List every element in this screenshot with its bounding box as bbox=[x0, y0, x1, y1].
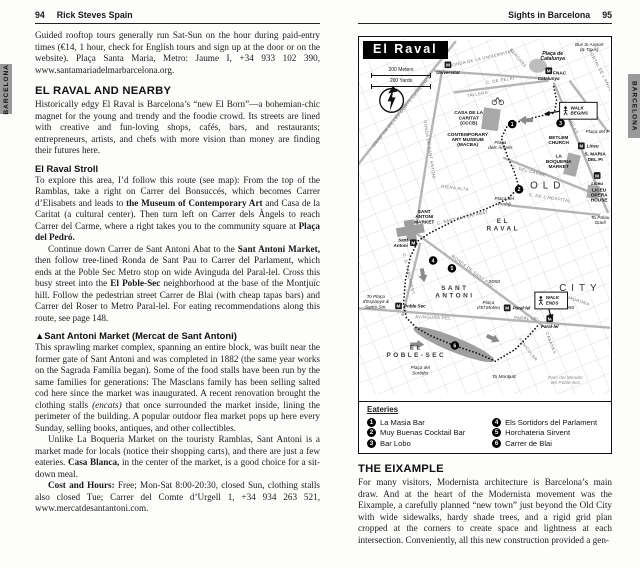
svg-text:1: 1 bbox=[511, 122, 514, 128]
left-page-header: 94 Rick Steves Spain bbox=[35, 10, 320, 24]
scale-bar-meters bbox=[371, 73, 431, 78]
svg-text:M: M bbox=[505, 306, 509, 312]
metro-station-label: Catalunya bbox=[538, 76, 560, 81]
right-page-header: Sights in Barcelona 95 bbox=[358, 10, 612, 24]
legend-item: 2Muy Buenas Cocktail Bar bbox=[367, 428, 492, 437]
intro-paragraph: Guided rooftop tours generally run Sat-S… bbox=[35, 30, 320, 76]
running-title: Rick Steves Spain bbox=[57, 10, 133, 20]
market-cost-hours: Cost and Hours: Free; Mon-Sat 8:00-20:30… bbox=[35, 480, 320, 515]
left-page-body: Guided rooftop tours generally run Sat-S… bbox=[35, 30, 320, 515]
market-paragraph-2: Unlike La Boqueria Market on the tourist… bbox=[35, 434, 320, 480]
metro-station-icon: MPoble Sec bbox=[395, 303, 426, 310]
svg-text:WALKENDS: WALKENDS bbox=[546, 295, 560, 305]
legend-item-number: 5 bbox=[492, 428, 501, 437]
svg-text:3: 3 bbox=[559, 121, 562, 127]
stroll-paragraph-2: Continue down Carrer de Sant Antoni Abat… bbox=[35, 244, 320, 325]
eatery-marker-6: 6 bbox=[451, 341, 459, 349]
running-title: Sights in Barcelona bbox=[508, 10, 590, 20]
right-page: Sights in Barcelona 95 El Raval 200 Mete… bbox=[358, 10, 612, 546]
map-scale: 200 Meters 200 Yards bbox=[371, 67, 431, 89]
legend-item-label: La Masia Bar bbox=[380, 418, 425, 427]
eixample-paragraph: For many visitors, Modernista architectu… bbox=[358, 477, 612, 546]
legend-item-number: 3 bbox=[367, 439, 376, 448]
legend-item-number: 4 bbox=[492, 418, 501, 427]
eatery-marker-2: 2 bbox=[515, 185, 523, 193]
eatery-marker-1: 1 bbox=[508, 120, 516, 128]
map-label: Plaça deCatalunya bbox=[540, 51, 565, 62]
market-paragraph-1: This sprawling market complex, spanning … bbox=[35, 342, 320, 434]
map-label: To Montjuïc bbox=[492, 374, 517, 380]
market-heading: ▲Sant Antoni Market (Mercat de Sant Anto… bbox=[35, 330, 320, 341]
legend-column-2: 4Els Sortidors del Parlament5Horchateria… bbox=[492, 416, 603, 449]
legend-item-number: 1 bbox=[367, 418, 376, 427]
map-canvas: GRAN VIA DE LES CORTS CATALANESRONDA DE … bbox=[359, 37, 610, 396]
svg-text:2: 2 bbox=[518, 187, 521, 193]
scale-bar-yards bbox=[371, 84, 431, 89]
map-legend: Eateries 1La Masia Bar2Muy Buenas Cockta… bbox=[359, 401, 611, 453]
tab-label: BARCELONA bbox=[631, 81, 638, 132]
map-label: Plaça delSortidor bbox=[411, 365, 431, 376]
stroll-paragraph-1: To explore this area, I’d follow this ro… bbox=[35, 175, 320, 244]
stroll-heading: El Raval Stroll bbox=[35, 163, 320, 174]
svg-text:M: M bbox=[411, 240, 415, 246]
svg-text:M: M bbox=[397, 304, 401, 310]
map-label: LICEUOPERAHOUSE bbox=[591, 187, 608, 203]
metro-station-label: Liceu bbox=[591, 181, 603, 186]
page-number: 94 bbox=[35, 10, 45, 20]
right-page-body: For many visitors, Modernista architectu… bbox=[358, 477, 612, 546]
svg-text:5: 5 bbox=[450, 266, 453, 272]
legend-item-number: 2 bbox=[367, 428, 376, 437]
legend-column-1: 1La Masia Bar2Muy Buenas Cocktail Bar3Ba… bbox=[367, 416, 492, 449]
el-raval-map: El Raval 200 Meters 200 Yards bbox=[358, 36, 612, 454]
tab-label: BARCELONA bbox=[3, 64, 10, 115]
barcelona-chapter-tab-left: BARCELONA bbox=[0, 64, 12, 114]
metro-station-label: Paral·lel bbox=[513, 306, 531, 311]
barcelona-chapter-tab-right: BARCELONA bbox=[628, 74, 640, 138]
metro-station-label: Paral·lel bbox=[541, 324, 559, 329]
eatery-marker-5: 5 bbox=[448, 264, 456, 272]
legend-item: 5Horchateria Sirvent bbox=[492, 428, 603, 437]
legend-item-label: Els Sortidors del Parlament bbox=[505, 418, 597, 427]
page-number: 95 bbox=[602, 10, 612, 20]
legend-item-label: Muy Buenas Cocktail Bar bbox=[380, 428, 465, 437]
section-heading: EL RAVAL AND NEARBY bbox=[35, 85, 320, 97]
svg-text:4: 4 bbox=[432, 258, 435, 264]
legend-item: 6Carrer de Blai bbox=[492, 439, 603, 448]
left-page: 94 Rick Steves Spain Guided rooftop tour… bbox=[35, 10, 320, 515]
eixample-heading: THE EIXAMPLE bbox=[358, 463, 612, 475]
legend-title: Eateries bbox=[367, 405, 603, 414]
map-label: OLD bbox=[530, 180, 565, 191]
svg-text:M: M bbox=[595, 173, 599, 179]
svg-text:M: M bbox=[579, 144, 583, 150]
legend-item-number: 6 bbox=[492, 439, 501, 448]
raval-intro-paragraph: Historically edgy El Raval is Barcelona’… bbox=[35, 99, 320, 157]
map-label: BETLEMCHURCH bbox=[548, 135, 569, 146]
metro-station-icon: MParal·lel bbox=[504, 305, 531, 312]
legend-item-label: Carrer de Blai bbox=[505, 439, 552, 448]
map-label: Parc del Miradordel Poble-Sec bbox=[548, 375, 583, 386]
metro-station-icon: MLiceu bbox=[578, 142, 599, 149]
eatery-marker-4: 4 bbox=[429, 256, 437, 264]
metro-station-label: Liceu bbox=[587, 144, 599, 149]
svg-text:M: M bbox=[547, 69, 551, 75]
legend-item-label: Horchateria Sirvent bbox=[505, 428, 570, 437]
svg-text:6: 6 bbox=[453, 343, 456, 349]
legend-item: 3Bar Lobo bbox=[367, 439, 492, 448]
metro-station-label: Universitat bbox=[436, 70, 460, 75]
metro-station-label: Poble Sec bbox=[404, 304, 426, 309]
map-title: El Raval bbox=[363, 41, 448, 59]
svg-text:M: M bbox=[446, 63, 450, 69]
map-label: Plaça del Pi bbox=[586, 129, 610, 135]
legend-item-label: Bar Lobo bbox=[380, 439, 411, 448]
legend-item: 4Els Sortidors del Parlament bbox=[492, 418, 603, 427]
map-label: #D50 bbox=[489, 279, 501, 285]
eatery-marker-3: 3 bbox=[556, 119, 564, 127]
legend-item: 1La Masia Bar bbox=[367, 418, 492, 427]
